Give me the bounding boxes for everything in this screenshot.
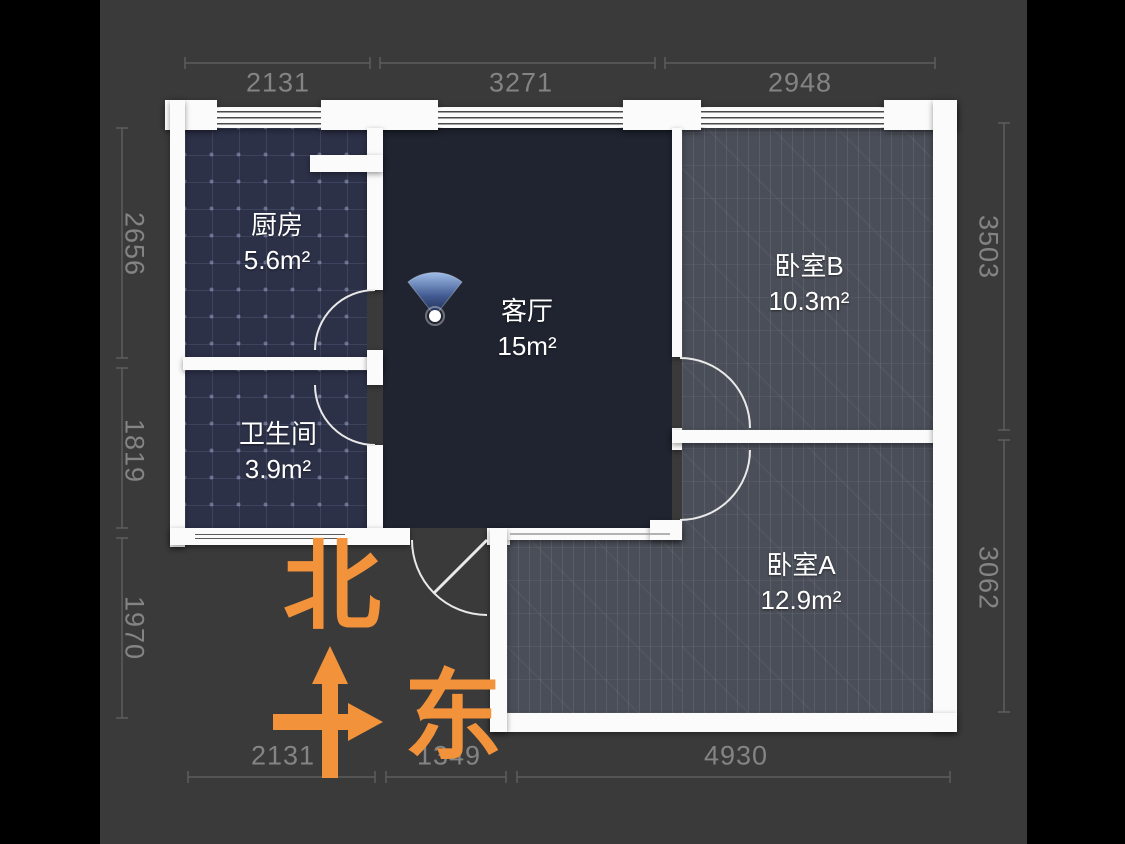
bedroom-a-south-wall [490,713,957,732]
living-bedrooms-wall-corner [650,520,682,540]
living-room-name: 客厅 [497,294,556,329]
kitchen-area: 5.6m² [244,243,310,278]
bedroom-a-floor-extension [507,540,682,713]
compass-north-label: 北 [283,537,381,635]
dim-top-2: 3271 [489,68,553,99]
floor-plan-view: 2131 3271 2948 2656 1819 1970 3503 3062 … [0,0,1125,844]
compass-east-label: 东 [404,667,502,765]
bedroom-b-name: 卧室B [769,249,850,284]
top-wall-pier-mid-left [321,100,438,130]
bedroom-b-window [701,108,884,127]
dim-left-3: 1970 [119,596,150,660]
bathroom-label: 卫生间 3.9m² [239,417,317,487]
kitchen-window [217,108,321,127]
dim-top-3: 2948 [768,68,832,99]
dim-right-2: 3062 [973,546,1004,610]
living-room-window [438,108,623,127]
dim-bottom-3: 4930 [704,741,768,772]
kitchen-living-wall-upper [367,128,383,290]
living-room-label: 客厅 15m² [497,294,556,364]
bathroom-area: 3.9m² [239,452,317,487]
dim-right-1: 3503 [973,215,1004,279]
dim-left-1: 2656 [119,212,150,276]
left-wall [170,100,185,547]
bedroom-b-label: 卧室B 10.3m² [769,249,850,319]
kitchen-stub-wall [310,155,383,172]
living-room-area: 15m² [497,329,556,364]
kitchen-living-wall-lower [367,445,383,530]
kitchen-living-wall-mid [367,350,383,385]
top-wall-pier-mid-right [623,100,701,130]
kitchen-label: 厨房 5.6m² [244,208,310,278]
dim-top-1: 2131 [246,68,310,99]
bathroom-name: 卫生间 [239,417,317,452]
bedroom-a-area: 12.9m² [761,583,842,618]
bedroom-b-area: 10.3m² [769,284,850,319]
dim-bottom-1: 2131 [251,741,315,772]
kitchen-name: 厨房 [244,208,310,243]
right-wall [933,100,957,732]
bedroom-a-label: 卧室A 12.9m² [761,548,842,618]
living-bedrooms-wall-upper [672,128,682,357]
kitchen-bathroom-divider-wall [183,357,383,370]
bedroom-b-a-divider-wall [672,430,938,443]
bedroom-a-name: 卧室A [761,548,842,583]
dim-left-2: 1819 [119,419,150,483]
